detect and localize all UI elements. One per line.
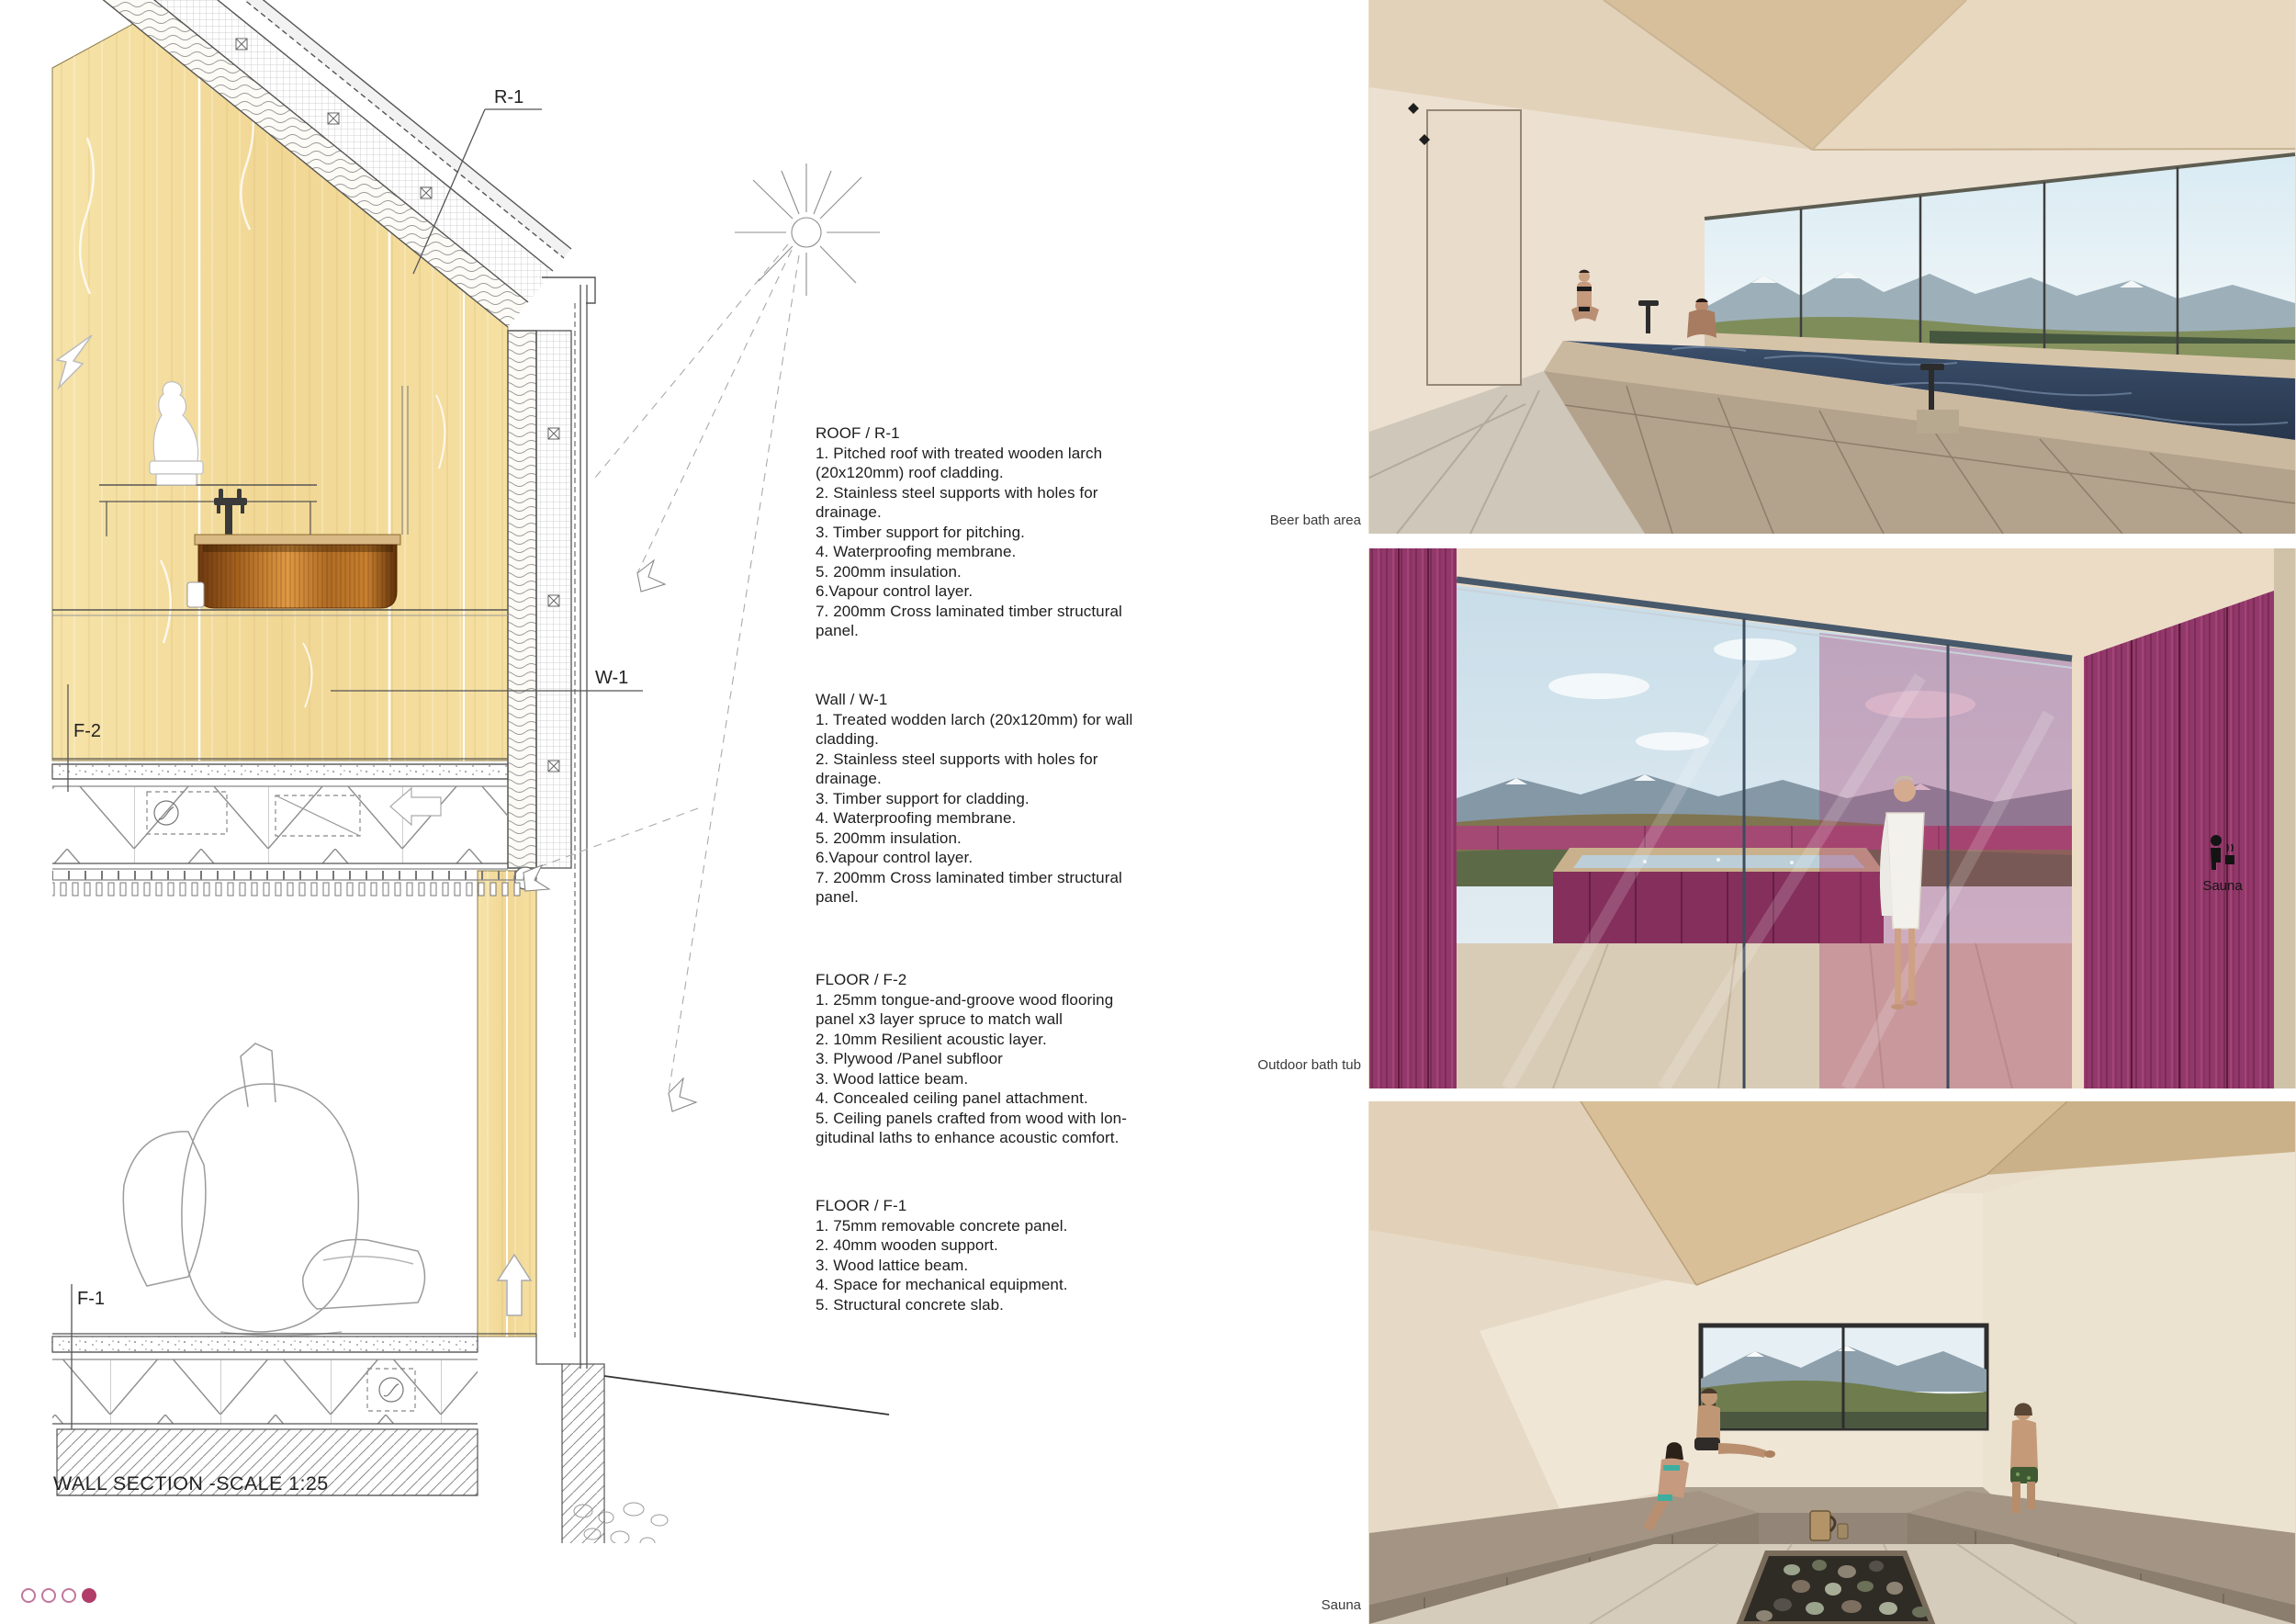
- note-block-roof: ROOF / R-1 1. Pitched roof with treated …: [816, 423, 1183, 641]
- label-floor-lower: F-1: [77, 1289, 105, 1309]
- caption-outdoor-bath-tub: Outdoor bath tub: [1257, 1057, 1361, 1073]
- note-body: 1. Treated wodden larch (20x120mm) for w…: [816, 710, 1183, 908]
- floor-f1-assembly: [52, 1334, 889, 1543]
- note-title: Wall / W-1: [816, 690, 1183, 710]
- label-roof: R-1: [494, 87, 523, 107]
- pink-wall-left: [1369, 548, 1457, 1088]
- pagination-dot[interactable]: [82, 1588, 96, 1603]
- note-block-wall: Wall / W-1 1. Treated wodden larch (20x1…: [816, 690, 1183, 908]
- wall-section-drawing: R-1 W-1 F-2 F-1 WALL SECTION -SCALE 1:25: [0, 0, 900, 1543]
- note-block-floor-f1: FLOOR / F-1 1. 75mm removable concrete p…: [816, 1196, 1183, 1314]
- pagination-dot[interactable]: [62, 1588, 76, 1603]
- stone-pit: [1739, 1553, 1932, 1624]
- pagination-dot[interactable]: [21, 1588, 36, 1603]
- caption-beer-bath-area: Beer bath area: [1270, 513, 1361, 528]
- pagination: [21, 1588, 96, 1603]
- caption-sauna: Sauna: [1322, 1597, 1361, 1613]
- sauna-window: [1701, 1325, 1986, 1428]
- door: [1427, 110, 1521, 385]
- render-beer-bath-area: [1368, 0, 2296, 534]
- glass-pink-tint: [1819, 633, 2072, 1088]
- note-body: 1. 75mm removable concrete panel. 2. 40m…: [816, 1216, 1183, 1315]
- label-wall: W-1: [595, 668, 628, 688]
- label-floor-upper: F-2: [73, 721, 101, 741]
- note-body: 1. 25mm tongue-and-groove wood flooring …: [816, 990, 1183, 1148]
- drawing-caption: WALL SECTION -SCALE 1:25: [53, 1472, 329, 1494]
- render-sauna: [1368, 1101, 2296, 1624]
- note-title: FLOOR / F-2: [816, 970, 1183, 990]
- note-block-floor-f2: FLOOR / F-2 1. 25mm tongue-and-groove wo…: [816, 970, 1183, 1148]
- pagination-dot[interactable]: [41, 1588, 56, 1603]
- note-title: FLOOR / F-1: [816, 1196, 1183, 1216]
- presentation-board: R-1 W-1 F-2 F-1 WALL SECTION -SCALE 1:25…: [0, 0, 2296, 1624]
- sauna-sign-label: Sauna: [2202, 878, 2243, 894]
- render-outdoor-bath-tub: Sauna: [1368, 548, 2296, 1088]
- note-title: ROOF / R-1: [816, 423, 1183, 444]
- wall-edge-strip: [2274, 548, 2295, 1088]
- floor-f2-assembly: [52, 759, 523, 897]
- note-body: 1. Pitched roof with treated wooden larc…: [816, 444, 1183, 641]
